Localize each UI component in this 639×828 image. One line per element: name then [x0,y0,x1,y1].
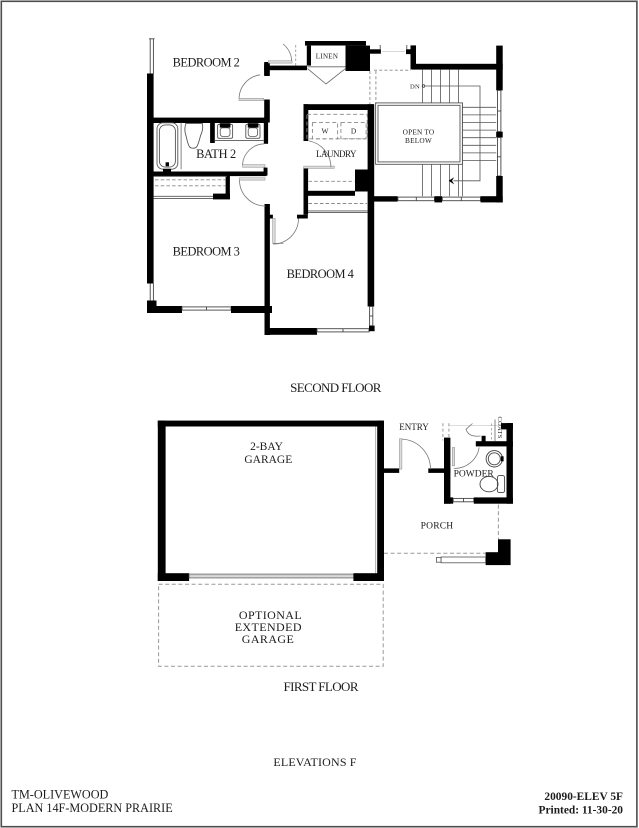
svg-text:POWDER: POWDER [454,470,495,480]
svg-text:D: D [351,127,357,136]
svg-text:LINEN: LINEN [316,53,339,61]
svg-text:W: W [322,127,329,136]
svg-text:BATH 2: BATH 2 [196,147,236,161]
svg-text:2-BAY: 2-BAY [250,441,283,453]
svg-text:PORCH: PORCH [421,522,454,532]
svg-text:BEDROOM 3: BEDROOM 3 [173,245,240,259]
svg-text:DN: DN [410,84,420,91]
svg-text:ELEVATIONS F: ELEVATIONS F [273,755,356,769]
svg-text:TM-OLIVEWOOD: TM-OLIVEWOOD [12,787,109,801]
svg-text:BEDROOM 4: BEDROOM 4 [287,267,354,281]
svg-text:OPEN TO: OPEN TO [403,127,435,136]
svg-text:LAUNDRY: LAUNDRY [316,149,357,159]
svg-text:COATS: COATS [496,416,503,438]
svg-text:SECOND FLOOR: SECOND FLOOR [290,380,382,395]
svg-text:BEDROOM 2: BEDROOM 2 [173,56,240,70]
svg-text:GARAGE: GARAGE [242,632,294,646]
svg-text:20090-ELEV 5F: 20090-ELEV 5F [544,791,623,803]
svg-text:ENTRY: ENTRY [399,422,429,432]
svg-text:Printed: 11-30-20: Printed: 11-30-20 [539,805,624,817]
svg-text:PLAN 14F-MODERN PRAIRIE: PLAN 14F-MODERN PRAIRIE [12,801,173,815]
svg-text:BELOW: BELOW [405,136,432,145]
svg-text:FIRST FLOOR: FIRST FLOOR [283,679,358,694]
svg-text:GARAGE: GARAGE [244,454,292,466]
